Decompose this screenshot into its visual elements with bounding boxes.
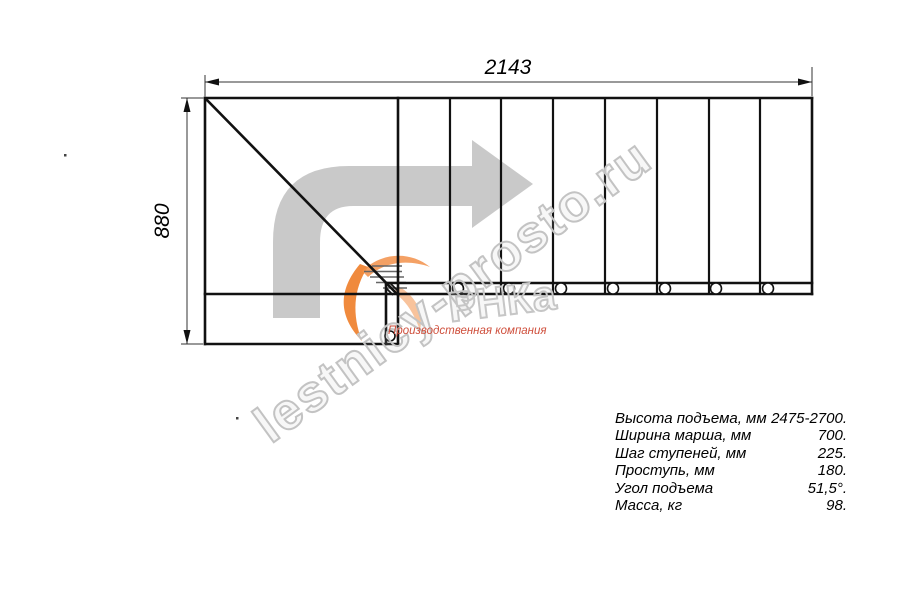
spec-label: Шаг ступеней, мм [615, 445, 746, 462]
spec-row: Высота подъема, мм2475-2700. [615, 410, 847, 427]
width-dimension-label: 2143 [484, 56, 532, 79]
speck [236, 417, 239, 420]
spec-table: Высота подъема, мм2475-2700.Ширина марша… [615, 410, 847, 514]
spec-row: Ширина марша, мм700. [615, 427, 847, 444]
spec-value: 2475-2700. [771, 410, 847, 427]
spec-value: 180. [818, 462, 847, 479]
top-dimension: 2143 [205, 56, 812, 96]
screw-circles [385, 283, 774, 341]
spec-row: Шаг ступеней, мм225. [615, 445, 847, 462]
left-dimension: 880 [151, 98, 203, 344]
spec-label: Высота подъема, мм [615, 410, 767, 427]
stair-drawing-page: 2143 880 lestnicy-prosto.ru РНКа Произво… [0, 0, 900, 600]
spec-value: 51,5°. [808, 480, 847, 497]
spec-value: 98. [826, 497, 847, 514]
spec-row: Масса, кг98. [615, 497, 847, 514]
spec-value: 700. [818, 427, 847, 444]
spec-row: Угол подъема51,5°. [615, 480, 847, 497]
dim-arrow-top [184, 98, 191, 112]
spec-value: 225. [818, 445, 847, 462]
spec-label: Ширина марша, мм [615, 427, 751, 444]
dim-arrow-left [205, 79, 219, 86]
dim-arrow-bottom [184, 330, 191, 344]
height-dimension-label: 880 [151, 203, 174, 238]
spec-row: Проступь, мм180. [615, 462, 847, 479]
spec-label: Угол подъема [615, 480, 713, 497]
dim-arrow-right [798, 79, 812, 86]
spec-label: Проступь, мм [615, 462, 715, 479]
spec-label: Масса, кг [615, 497, 682, 514]
speck [64, 154, 67, 157]
